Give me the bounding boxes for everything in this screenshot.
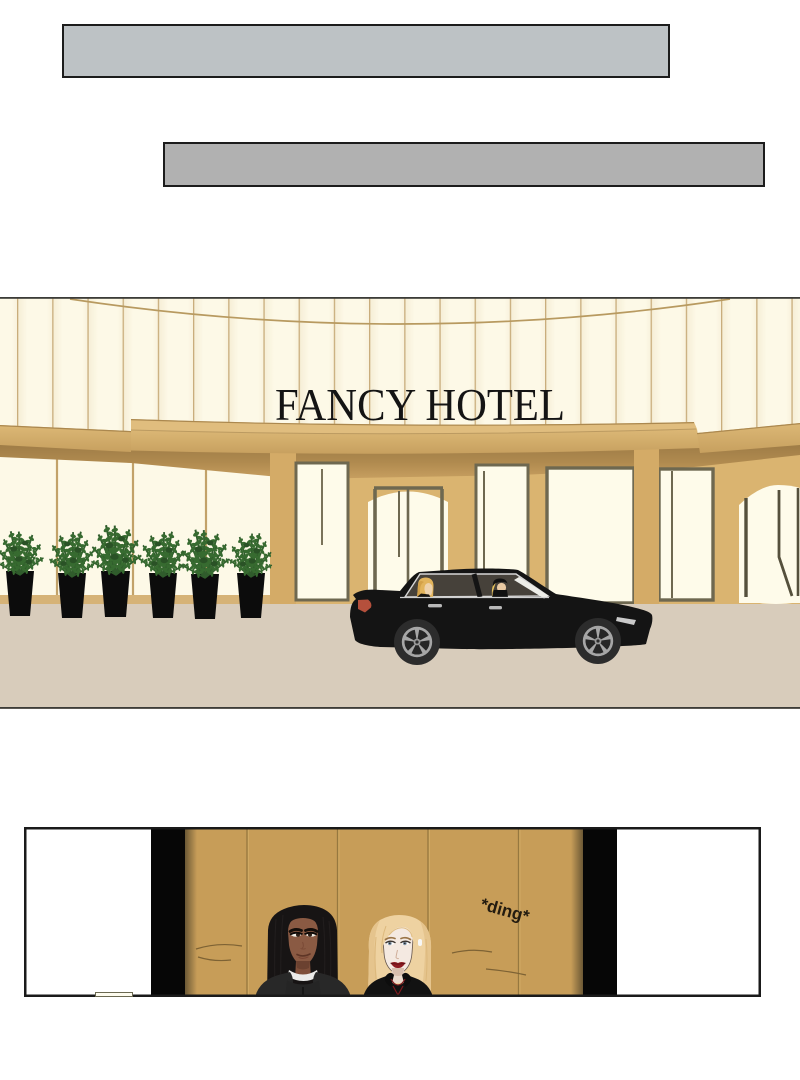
svg-text:FANCY HOTEL: FANCY HOTEL	[275, 379, 565, 430]
